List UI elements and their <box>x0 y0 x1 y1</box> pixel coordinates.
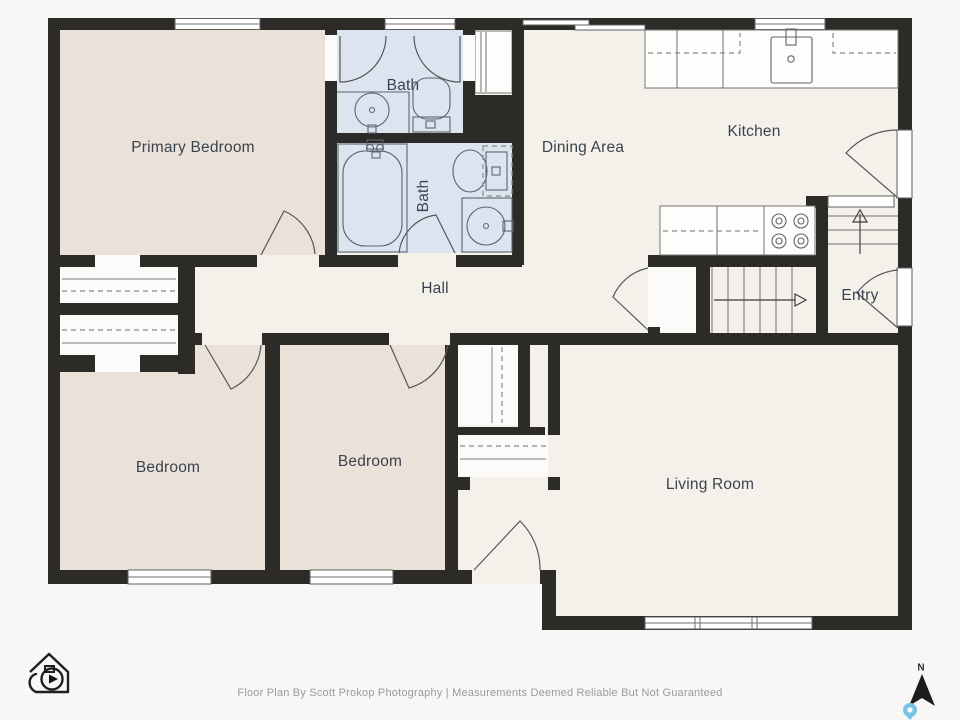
room-label-entry: Entry <box>841 287 878 305</box>
kitchen-counter-top <box>645 29 898 88</box>
room-label-primary-bedroom: Primary Bedroom <box>131 139 255 157</box>
kitchen-peninsula <box>660 206 815 255</box>
room-label-hall: Hall <box>421 280 449 298</box>
room-label-living-room: Living Room <box>666 476 754 494</box>
room-label-bath-bottom: Bath <box>415 180 433 213</box>
room-label-dining-area: Dining Area <box>542 139 624 157</box>
compass <box>898 672 948 720</box>
sliding-door-panel <box>523 20 589 25</box>
room-label-bedroom-middle: Bedroom <box>338 453 402 471</box>
bedroom-left-closet <box>60 315 178 357</box>
credit-line: Floor Plan By Scott Prokop Photography |… <box>0 687 960 699</box>
entry-closet <box>660 267 696 333</box>
room-label-bedroom-left: Bedroom <box>136 459 200 477</box>
front-door-leaf <box>897 268 912 326</box>
bedroom-middle-closet <box>458 345 518 425</box>
north-arrow-icon <box>898 672 948 720</box>
stove <box>764 206 815 255</box>
side-door-leaf <box>897 130 912 198</box>
floor-plan-drawing <box>0 0 960 720</box>
floor-plan-page: Primary Bedroom Bath Bath Dining Area Ki… <box>0 0 960 720</box>
room-label-bath-top: Bath <box>387 77 420 95</box>
house-camera-icon <box>22 646 76 700</box>
linen-closet <box>458 435 548 477</box>
map-pin-icon <box>903 703 917 720</box>
bedroom-left-floor <box>60 345 265 570</box>
photography-logo <box>22 646 76 700</box>
room-label-kitchen: Kitchen <box>727 123 780 141</box>
primary-closet <box>60 267 178 305</box>
stair-landing-door-leaf <box>828 196 894 207</box>
sliding-door-panel <box>575 25 645 30</box>
